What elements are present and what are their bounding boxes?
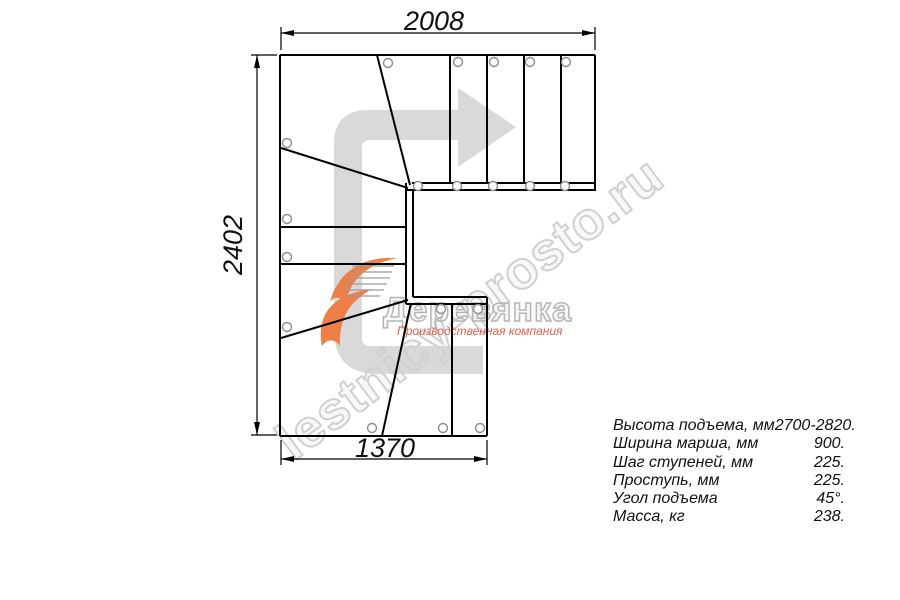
dimension-lines: [251, 27, 595, 465]
dimension-top-value: 2008: [403, 6, 464, 36]
spec-label: Масса, кг: [613, 508, 685, 526]
spec-table: Высота подъема, мм 2700-2820. Ширина мар…: [613, 417, 845, 527]
dimension-bottom-value: 1370: [355, 433, 415, 463]
spec-value: 2700-2820.: [775, 417, 856, 435]
spec-row-flight-width: Ширина марша, мм 900.: [613, 435, 845, 453]
spec-label: Ширина марша, мм: [613, 435, 758, 453]
spec-row-rise-angle: Угол подъема 45°.: [613, 490, 845, 508]
stair-drawing-canvas: lestnicy-prosto.ru Деревянка Производств…: [0, 0, 900, 600]
spec-value: 225.: [814, 454, 845, 472]
spec-label: Угол подъема: [613, 490, 718, 508]
screw-hole-markers: [283, 58, 571, 433]
spec-label: Проступь, мм: [613, 472, 719, 490]
spec-row-mass: Масса, кг 238.: [613, 508, 845, 526]
spec-row-rise-height: Высота подъема, мм 2700-2820.: [613, 417, 845, 435]
spec-value: 45°.: [816, 490, 845, 508]
spec-label: Шаг ступеней, мм: [613, 454, 753, 472]
spec-label: Высота подъема, мм: [613, 417, 775, 435]
dimension-left-value: 2402: [218, 215, 248, 276]
stair-treads: [280, 55, 561, 436]
spec-row-step-pitch: Шаг ступеней, мм 225.: [613, 454, 845, 472]
spec-row-tread-depth: Проступь, мм 225.: [613, 472, 845, 490]
stair-outline: [280, 55, 595, 436]
spec-value: 225.: [814, 472, 845, 490]
dimension-arrowheads: [254, 30, 595, 462]
spec-value: 238.: [814, 508, 845, 526]
spec-value: 900.: [814, 435, 845, 453]
